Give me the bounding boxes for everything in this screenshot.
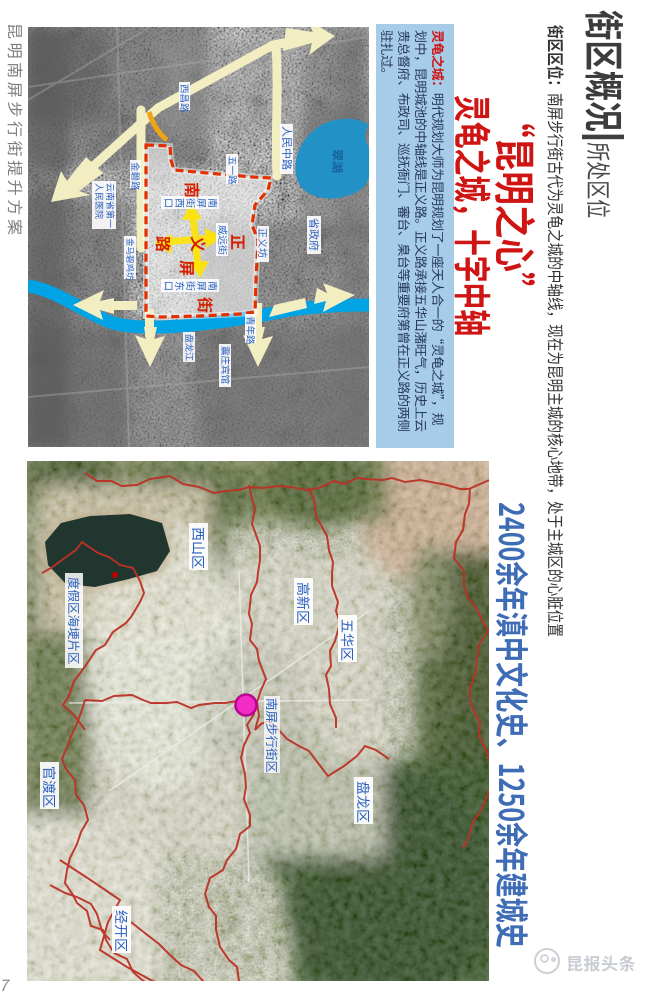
svg-text:金碧路: 金碧路 [129,162,143,191]
svg-text:高新区: 高新区 [293,582,313,624]
svg-text:南屏街西口: 南屏街西口 [162,198,221,208]
svg-text:西山区: 西山区 [188,527,208,569]
svg-text:五一路: 五一路 [226,156,240,185]
svg-text:官渡区: 官渡区 [39,766,59,808]
svg-text:人民医院: 人民医院 [93,183,106,219]
svg-text:义: 义 [187,236,211,252]
svg-text:五华区: 五华区 [337,619,357,661]
svg-text:经开区: 经开区 [111,910,131,952]
svg-text:翠湖: 翠湖 [329,149,346,173]
svg-text:正义坊: 正义坊 [256,228,271,258]
svg-text:西昌路: 西昌路 [178,84,192,113]
svg-text:度假区海埂片区: 度假区海埂片区 [65,577,84,665]
svg-text:正: 正 [227,234,251,250]
svg-text:盘龙江: 盘龙江 [183,334,196,361]
svg-text:南屏街东口: 南屏街东口 [162,281,221,291]
svg-text:盘龙区: 盘龙区 [353,781,373,823]
svg-text:街: 街 [194,297,218,313]
svg-text:屏: 屏 [176,260,200,276]
svg-text:青年路: 青年路 [244,316,258,345]
svg-text:人民中路: 人民中路 [279,126,295,170]
svg-text:省政府: 省政府 [306,218,322,251]
svg-text:震庄宾馆: 震庄宾馆 [219,346,233,384]
svg-text:金马碧鸡坊: 金马碧鸡坊 [124,238,136,281]
svg-text:南屏步行街区: 南屏步行街区 [263,698,282,773]
svg-text:南: 南 [181,182,205,198]
svg-text:路: 路 [152,236,176,252]
